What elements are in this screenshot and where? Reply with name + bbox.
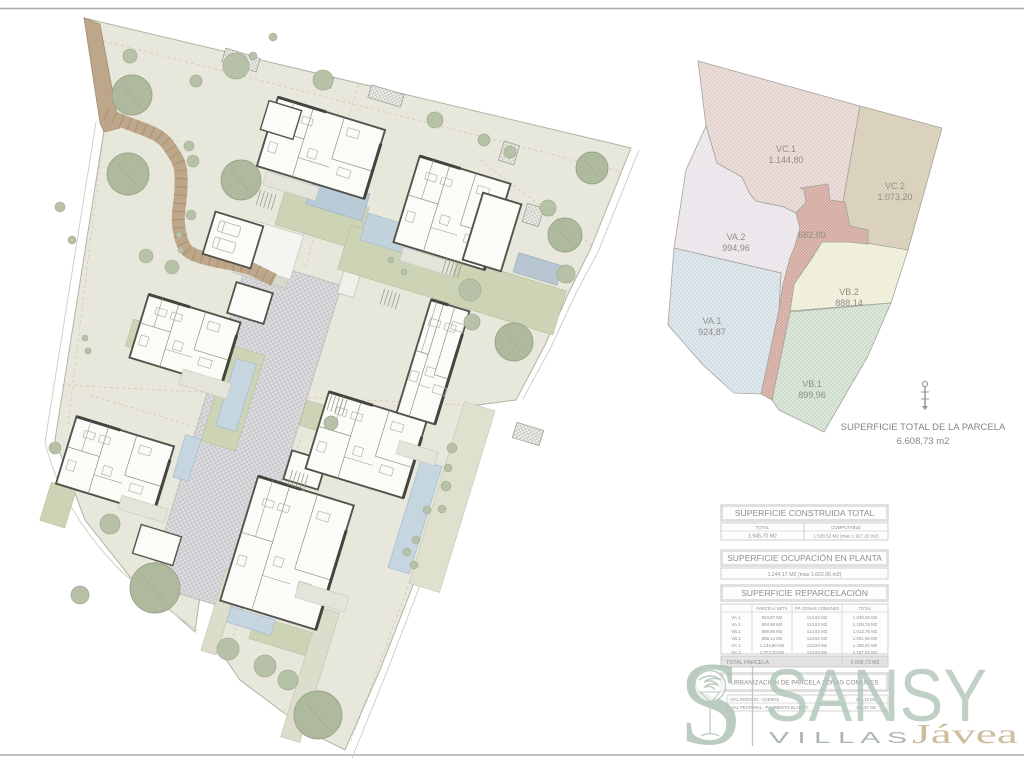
svg-text:COMPUTABLE: COMPUTABLE	[831, 525, 861, 530]
svg-text:1.945,70 M2: 1.945,70 M2	[748, 534, 777, 540]
svg-text:113,82 M2: 113,82 M2	[807, 622, 828, 627]
svg-text:VB.2: VB.2	[839, 287, 859, 297]
svg-text:1.108,78 M2: 1.108,78 M2	[853, 622, 878, 627]
svg-text:TOTAL: TOTAL	[858, 606, 872, 611]
svg-text:SUPERFICIE OCUPACIÓN EN PLANTA: SUPERFICIE OCUPACIÓN EN PLANTA	[727, 553, 882, 563]
svg-text:888,14: 888,14	[835, 298, 863, 308]
svg-text:113,82 M2: 113,82 M2	[807, 643, 828, 648]
svg-text:924,87 M2: 924,87 M2	[762, 615, 783, 620]
svg-text:VA.1: VA.1	[731, 615, 741, 620]
svg-text:VA.1: VA.1	[703, 316, 722, 326]
svg-text:SUPERFICIE TOTAL DE LA PARCELA: SUPERFICIE TOTAL DE LA PARCELA	[841, 422, 1006, 433]
svg-text:899,96: 899,96	[798, 390, 826, 400]
svg-text:924,87: 924,87	[698, 327, 726, 337]
svg-text:1.244,17 M2 (max 1.622,06 m2): 1.244,17 M2 (max 1.622,06 m2)	[768, 572, 842, 578]
svg-text:VB.1: VB.1	[802, 379, 822, 389]
svg-text:113,82 M2: 113,82 M2	[807, 636, 828, 641]
svg-text:Jávea: Jávea	[912, 719, 1018, 749]
svg-text:VA.2: VA.2	[727, 232, 746, 242]
svg-text:994,96: 994,96	[722, 243, 750, 253]
svg-text:TOTAL: TOTAL	[756, 525, 770, 530]
svg-text:PP. ZONAS COMUNES: PP. ZONAS COMUNES	[795, 606, 840, 611]
svg-text:6.608,73 m2: 6.608,73 m2	[897, 436, 950, 447]
svg-text:1.258,62 M2: 1.258,62 M2	[853, 643, 878, 648]
svg-text:994,96 M2: 994,96 M2	[762, 622, 783, 627]
svg-text:PARCELA NETA: PARCELA NETA	[756, 606, 787, 611]
svg-text:1.073,20: 1.073,20	[877, 192, 912, 202]
svg-text:1.013,78 M2: 1.013,78 M2	[853, 629, 878, 634]
svg-text:1.144,80 M2: 1.144,80 M2	[760, 643, 785, 648]
svg-text:VC.1: VC.1	[776, 144, 796, 154]
svg-text:V I L L A S: V I L L A S	[769, 730, 907, 747]
svg-text:VB.1: VB.1	[731, 629, 741, 634]
svg-text:VC.2: VC.2	[885, 181, 905, 191]
svg-text:VA.2: VA.2	[731, 622, 741, 627]
svg-text:682,80: 682,80	[798, 230, 826, 240]
svg-text:1.144,80: 1.144,80	[768, 155, 803, 165]
svg-text:SUPERFICIE REPARCELACIÓN: SUPERFICIE REPARCELACIÓN	[741, 588, 868, 598]
svg-text:888,14 M2: 888,14 M2	[762, 636, 783, 641]
svg-text:SUPERFICIE CONSTRUIDA TOTAL: SUPERFICIE CONSTRUIDA TOTAL	[735, 508, 875, 518]
svg-text:113,82 M2: 113,82 M2	[807, 629, 828, 634]
svg-text:1.538,53 M2 (max 1.927,22 m2): 1.538,53 M2 (max 1.927,22 m2)	[813, 534, 879, 539]
svg-text:113,82 M2: 113,82 M2	[807, 615, 828, 620]
svg-text:1.001,96 M2: 1.001,96 M2	[853, 636, 878, 641]
svg-text:1.038,69 M2: 1.038,69 M2	[853, 615, 878, 620]
svg-text:899,96 M2: 899,96 M2	[762, 629, 783, 634]
